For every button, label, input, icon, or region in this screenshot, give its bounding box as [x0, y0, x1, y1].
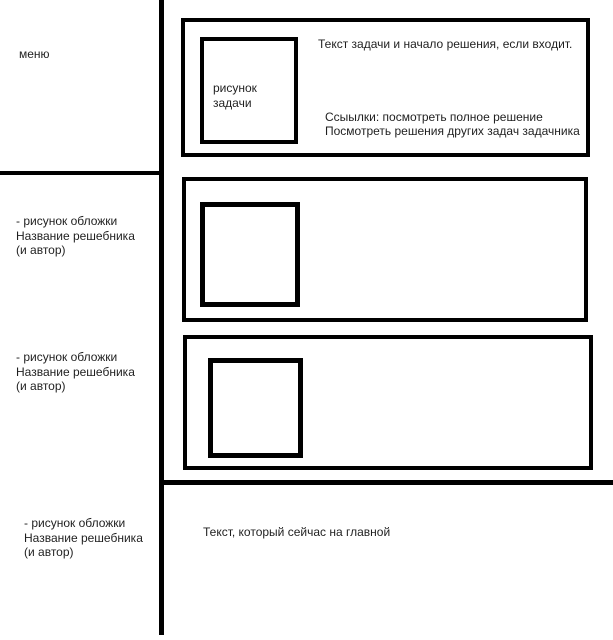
book-card-2	[183, 335, 593, 470]
sidebar-book-entry-2: - рисунок обложки Название решебника (и …	[16, 350, 135, 394]
sidebar-book-entry-3: - рисунок обложки Название решебника (и …	[24, 516, 143, 560]
wireframe-canvas: меню - рисунок обложки Название решебник…	[0, 0, 613, 640]
footer-horizontal-divider	[159, 480, 613, 485]
book-author-note: (и автор)	[16, 243, 135, 258]
book-cover-note: - рисунок обложки	[16, 214, 135, 229]
book-cover-placeholder-1	[200, 202, 300, 307]
sidebar-vertical-divider	[159, 0, 164, 635]
sidebar-book-entry-1: - рисунок обложки Название решебника (и …	[16, 214, 135, 258]
menu-horizontal-divider	[0, 171, 164, 175]
book-cover-note: - рисунок обложки	[24, 516, 143, 531]
task-image-label: рисунокзадачи	[213, 81, 257, 111]
book-author-note: (и автор)	[16, 379, 135, 394]
task-image-placeholder: рисунокзадачи	[200, 37, 298, 144]
book-title-note: Название решебника	[16, 229, 135, 244]
book-author-note: (и автор)	[24, 545, 143, 560]
task-image-label-line2: задачи	[213, 96, 252, 110]
book-card-1	[182, 177, 588, 322]
task-link-other-solutions: Посмотреть решения других задач задачник…	[325, 124, 585, 138]
task-card: рисунокзадачи Текст задачи и начало реше…	[181, 18, 590, 157]
task-link-full-solution: Ссыылки: посмотреть полное решение	[325, 110, 585, 124]
book-title-note: Название решебника	[16, 365, 135, 380]
menu-label: меню	[19, 47, 50, 62]
task-body-text: Текст задачи и начало решения, если вход…	[318, 37, 580, 52]
footer-main-text: Текст, который сейчас на главной	[203, 525, 390, 540]
book-cover-note: - рисунок обложки	[16, 350, 135, 365]
book-cover-placeholder-2	[208, 358, 303, 458]
book-title-note: Название решебника	[24, 531, 143, 546]
task-image-label-line1: рисунок	[213, 81, 257, 95]
task-links: Ссыылки: посмотреть полное решение Посмо…	[325, 110, 585, 138]
